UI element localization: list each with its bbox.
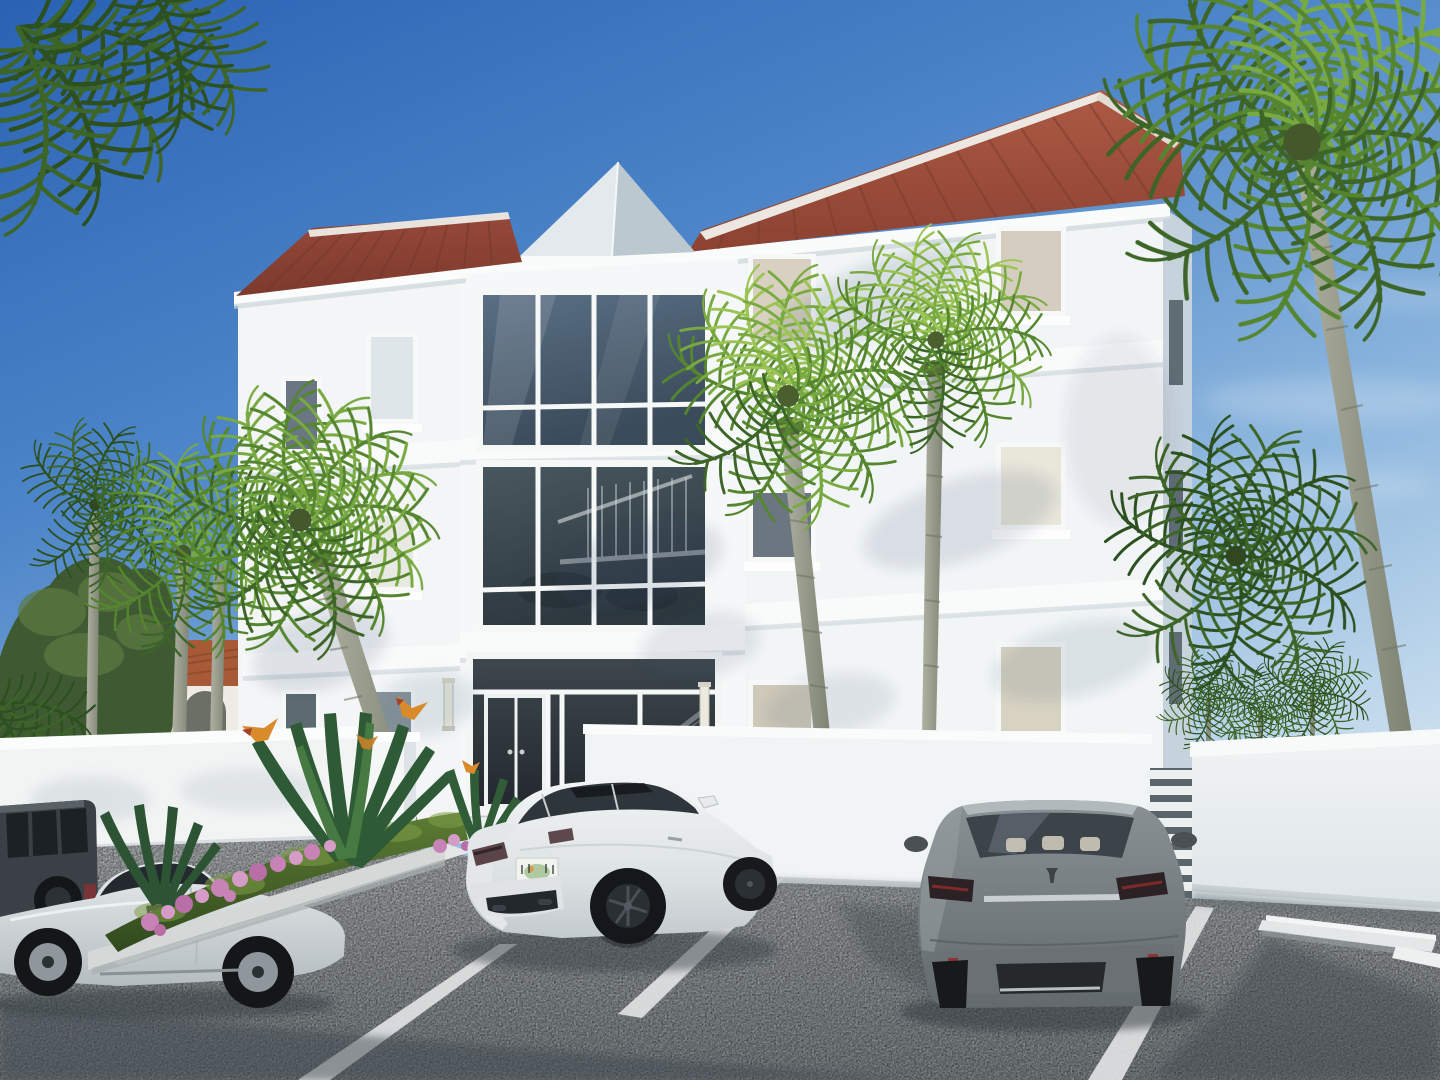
perimeter-wall-right bbox=[1190, 729, 1440, 916]
scene-rendering bbox=[0, 0, 1440, 1080]
front-wheel bbox=[723, 857, 777, 911]
side-face-windows bbox=[1169, 300, 1183, 704]
rendering-stage bbox=[0, 0, 1440, 1080]
mirror-right bbox=[1171, 832, 1197, 848]
curtain-wall-third-floor bbox=[476, 288, 712, 452]
rear-wheel bbox=[590, 868, 666, 944]
mirror-left bbox=[904, 836, 928, 852]
headrests bbox=[1006, 836, 1100, 852]
